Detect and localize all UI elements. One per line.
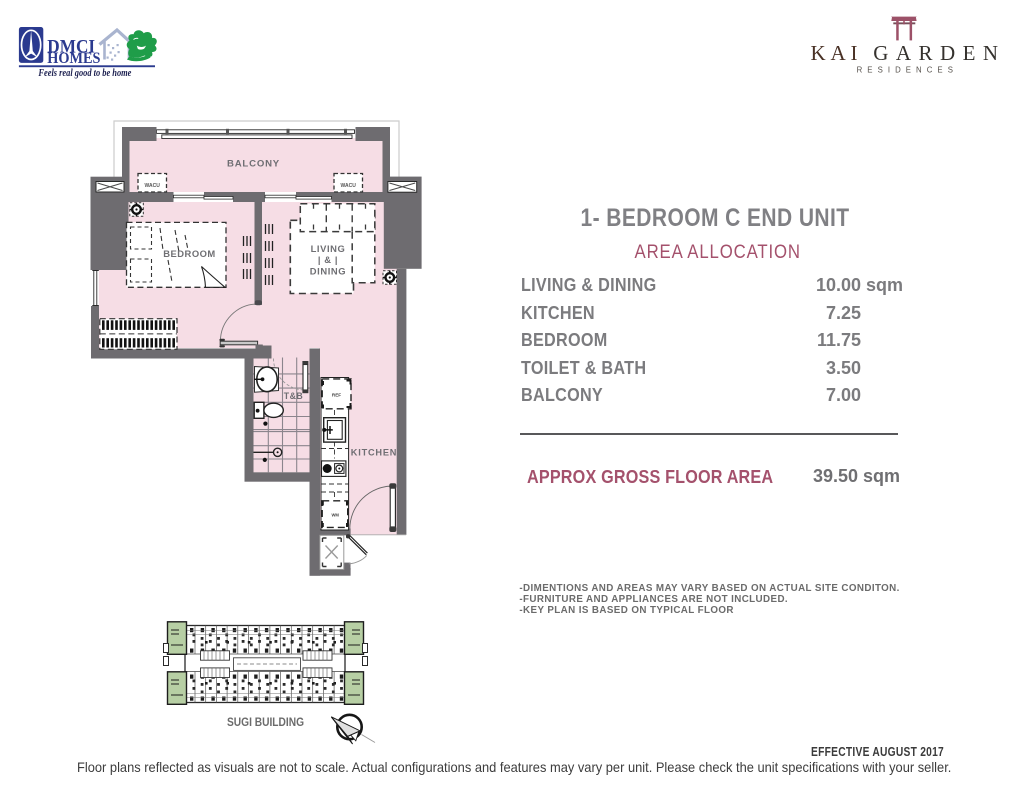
svg-text:HOMES: HOMES	[47, 50, 100, 67]
svg-text:WACU: WACU	[145, 183, 161, 189]
svg-text:SUGI BUILDING: SUGI BUILDING	[227, 717, 304, 729]
svg-text:WM: WM	[331, 513, 339, 518]
svg-text:BEDROOM: BEDROOM	[163, 248, 215, 259]
svg-text:BALCONY: BALCONY	[227, 159, 280, 170]
svg-text:DINING: DINING	[310, 266, 346, 277]
svg-text:Feels real good to be home: Feels real good to be home	[38, 68, 132, 79]
svg-text:T&B: T&B	[284, 391, 304, 401]
svg-text:LIVING: LIVING	[311, 243, 346, 254]
svg-text:RESIDENCES: RESIDENCES	[857, 66, 953, 75]
svg-text:WACU: WACU	[341, 183, 357, 189]
svg-text:GARDEN: GARDEN	[873, 41, 998, 65]
svg-text:REF: REF	[332, 393, 341, 398]
svg-text:KITCHEN: KITCHEN	[351, 448, 397, 458]
svg-text:| & |: | & |	[318, 254, 338, 265]
svg-text:KAI: KAI	[811, 41, 858, 65]
